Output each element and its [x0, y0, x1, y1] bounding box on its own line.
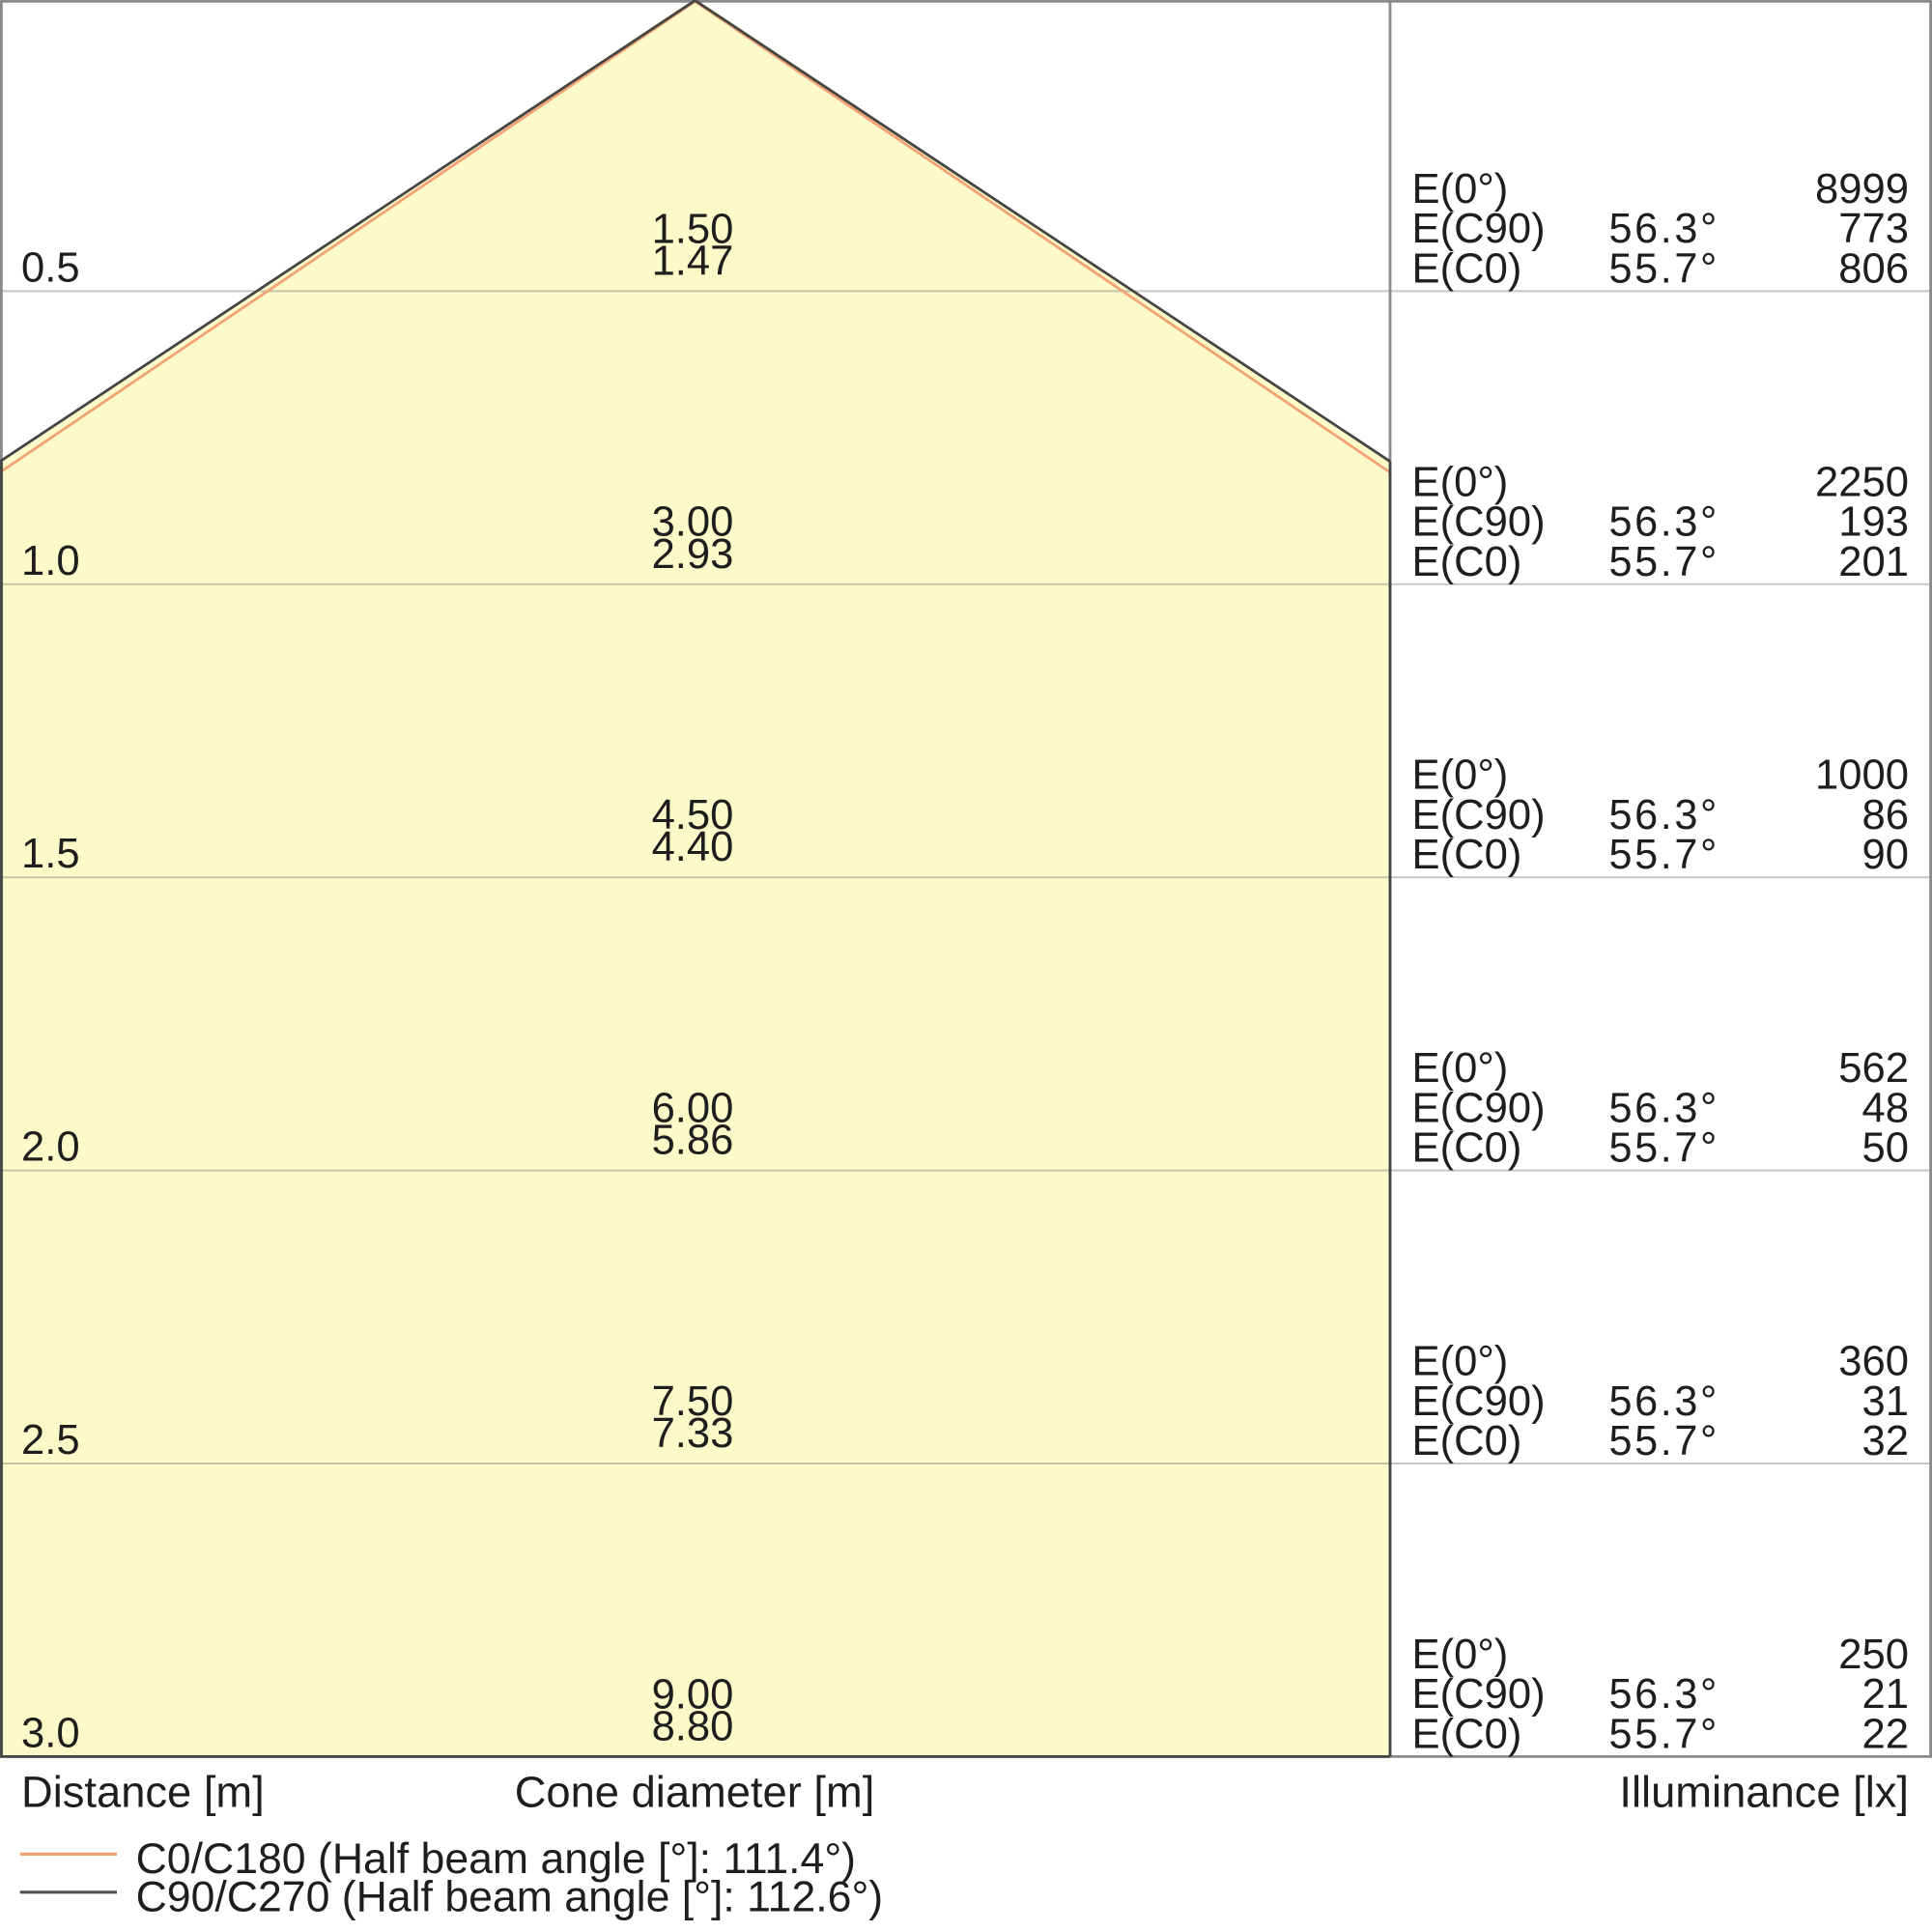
svg-text:22: 22	[1862, 1711, 1910, 1757]
svg-text:1.0: 1.0	[21, 538, 80, 584]
svg-text:C90/C270 (Half beam angle [°]:: C90/C270 (Half beam angle [°]: 112.6°)	[136, 1874, 884, 1921]
svg-text:2.0: 2.0	[21, 1124, 80, 1171]
svg-text:Cone diameter [m]: Cone diameter [m]	[515, 1768, 875, 1817]
svg-text:5.86: 5.86	[652, 1118, 734, 1164]
svg-text:3.0: 3.0	[21, 1710, 80, 1756]
svg-text:55.7°: 55.7°	[1609, 245, 1719, 292]
svg-text:55.7°: 55.7°	[1609, 1125, 1719, 1172]
svg-text:55.7°: 55.7°	[1609, 832, 1719, 878]
svg-text:55.7°: 55.7°	[1609, 1711, 1719, 1757]
svg-text:E(C0): E(C0)	[1412, 1125, 1522, 1172]
svg-text:806: 806	[1838, 245, 1909, 292]
svg-text:0.5: 0.5	[21, 244, 80, 291]
svg-text:55.7°: 55.7°	[1609, 539, 1719, 585]
svg-text:2.5: 2.5	[21, 1417, 80, 1463]
svg-text:32: 32	[1862, 1418, 1910, 1464]
svg-text:201: 201	[1838, 539, 1909, 585]
svg-text:55.7°: 55.7°	[1609, 1418, 1719, 1464]
svg-text:Distance [m]: Distance [m]	[21, 1768, 265, 1817]
svg-text:E(C0): E(C0)	[1412, 832, 1522, 878]
svg-text:1.5: 1.5	[21, 831, 80, 877]
svg-text:50: 50	[1862, 1125, 1910, 1172]
svg-text:1.47: 1.47	[652, 238, 734, 284]
svg-text:E(C0): E(C0)	[1412, 1711, 1522, 1757]
svg-text:E(C0): E(C0)	[1412, 245, 1522, 292]
svg-text:E(C0): E(C0)	[1412, 539, 1522, 585]
svg-text:Illuminance [lx]: Illuminance [lx]	[1619, 1768, 1909, 1817]
svg-text:E(C0): E(C0)	[1412, 1418, 1522, 1464]
svg-text:90: 90	[1862, 832, 1910, 878]
svg-text:2.93: 2.93	[652, 531, 734, 578]
svg-text:8.80: 8.80	[652, 1703, 734, 1749]
svg-text:4.40: 4.40	[652, 824, 734, 870]
svg-text:7.33: 7.33	[652, 1410, 734, 1457]
